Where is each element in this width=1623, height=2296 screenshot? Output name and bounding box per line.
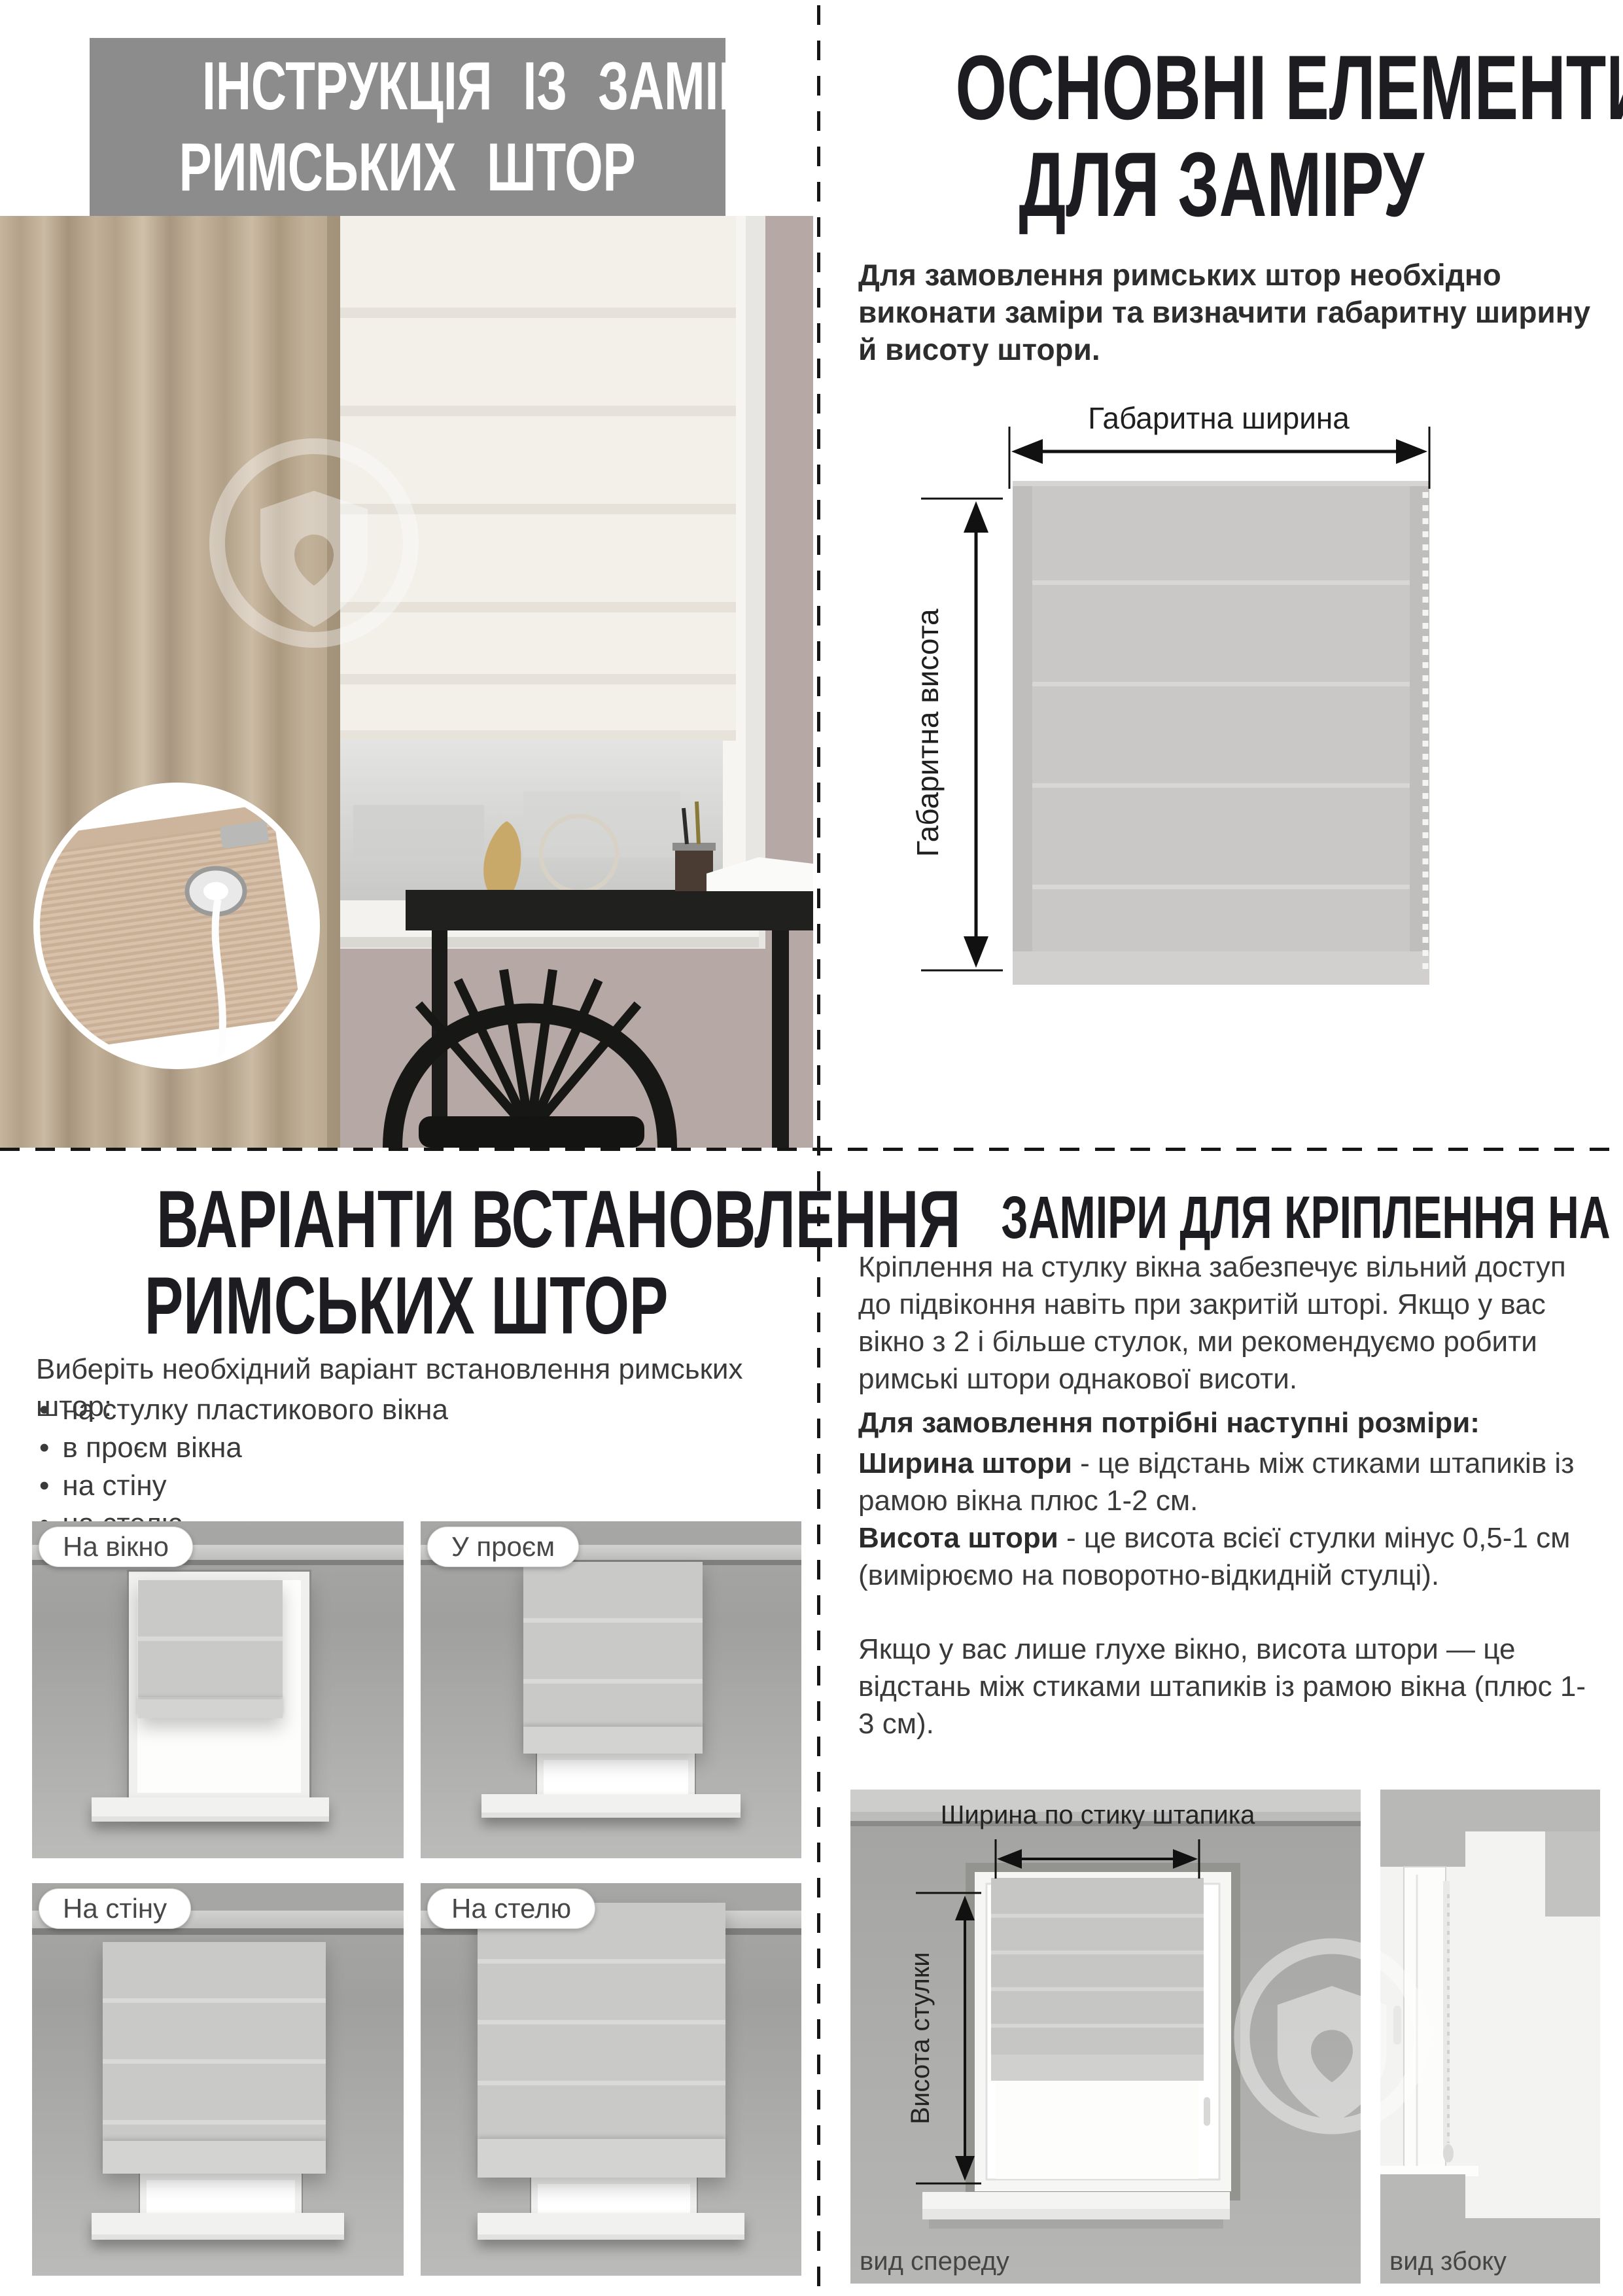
variant-label: У проєм <box>427 1527 579 1567</box>
list-item: на стулку пластикового вікна <box>39 1391 798 1429</box>
horizontal-divider <box>0 1148 1623 1151</box>
install-options-list: на стулку пластикового вікна в проєм вік… <box>39 1391 798 1543</box>
window-sill <box>481 1794 741 1818</box>
interior-photo-graphic <box>0 216 813 1148</box>
variant-label: На стіну <box>39 1888 191 1929</box>
variant-label: На стелю <box>427 1888 595 1929</box>
window-sill <box>92 1797 330 1821</box>
tr-intro-paragraph: Для замовлення римських штор необхідно в… <box>858 256 1596 368</box>
window-sill <box>92 2213 344 2240</box>
br-paragraph-2: Якщо у вас лише глухе вікно, висота штор… <box>858 1631 1597 1742</box>
sash-height-label: Висота стулки <box>906 1952 935 2124</box>
height-definition: Висота штори - це висота всієї стулки мі… <box>858 1519 1597 1594</box>
width-label: Габаритна ширина <box>1088 401 1350 435</box>
install-option-image-wall: На стіну <box>32 1883 404 2276</box>
section-title-sash-measures: ЗАМІРИ ДЛЯ КРІПЛЕННЯ НА СТУЛКУ ВІКНА <box>820 1186 1623 1250</box>
roman-blind <box>103 1942 326 2174</box>
install-option-image-opening: У проєм <box>421 1521 801 1858</box>
brand-watermark-icon <box>1227 1932 1437 2141</box>
br-definitions: Ширина штори - це відстань між стиками ш… <box>858 1445 1597 1594</box>
roman-blind <box>138 1580 283 1718</box>
bl-title-line2: РИМСЬКИХ ШТОР <box>145 1263 669 1349</box>
front-view-label: вид спереду <box>860 2247 1009 2276</box>
list-item: в проєм вікна <box>39 1429 798 1467</box>
section-title-main-elements: ОСНОВНІ ЕЛЕМЕНТИ ДЛЯ ЗАМІРУ <box>820 39 1623 233</box>
tr-title-line1: ОСНОВНІ ЕЛЕМЕНТИ <box>956 39 1623 136</box>
interior-photo <box>0 216 813 1148</box>
tr-title-line2: ДЛЯ ЗАМІРУ <box>1019 136 1424 233</box>
main-title-banner: ІНСТРУКЦІЯ ІЗ ЗАМІРУ РИМСЬКИХ ШТОР <box>90 38 725 216</box>
height-label: Габаритна висота <box>911 609 945 857</box>
variant-label: На вікно <box>39 1527 193 1567</box>
roman-blind <box>478 1903 725 2178</box>
window-sill <box>478 2213 744 2240</box>
section-title-install-options: ВАРІАНТИ ВСТАНОВЛЕННЯ РИМСЬКИХ ШТОР <box>0 1176 813 1349</box>
br-paragraph-1: Кріплення на стулку вікна забезпечує віл… <box>858 1248 1597 1398</box>
install-option-image-window: На вікно <box>32 1521 404 1858</box>
sash-width-label: Ширина по стику штапика <box>941 1801 1255 1829</box>
side-view-label: вид збоку <box>1389 2247 1507 2276</box>
main-title-line2: РИМСЬКИХ ШТОР <box>179 127 636 208</box>
list-item: на стіну <box>39 1467 798 1505</box>
roman-blind <box>523 1562 703 1754</box>
width-definition: Ширина штори - це відстань між стиками ш… <box>858 1445 1597 1519</box>
instruction-sheet: ІНСТРУКЦІЯ ІЗ ЗАМІРУ РИМСЬКИХ ШТОР <box>0 0 1623 2296</box>
install-option-image-ceiling: На стелю <box>421 1883 801 2276</box>
main-title-line1: ІНСТРУКЦІЯ ІЗ ЗАМІРУ <box>202 46 781 127</box>
br-sizes-heading: Для замовлення потрібні наступні розміри… <box>858 1404 1597 1441</box>
overall-size-diagram: Габаритна ширина Габаритна висота <box>903 387 1616 1006</box>
